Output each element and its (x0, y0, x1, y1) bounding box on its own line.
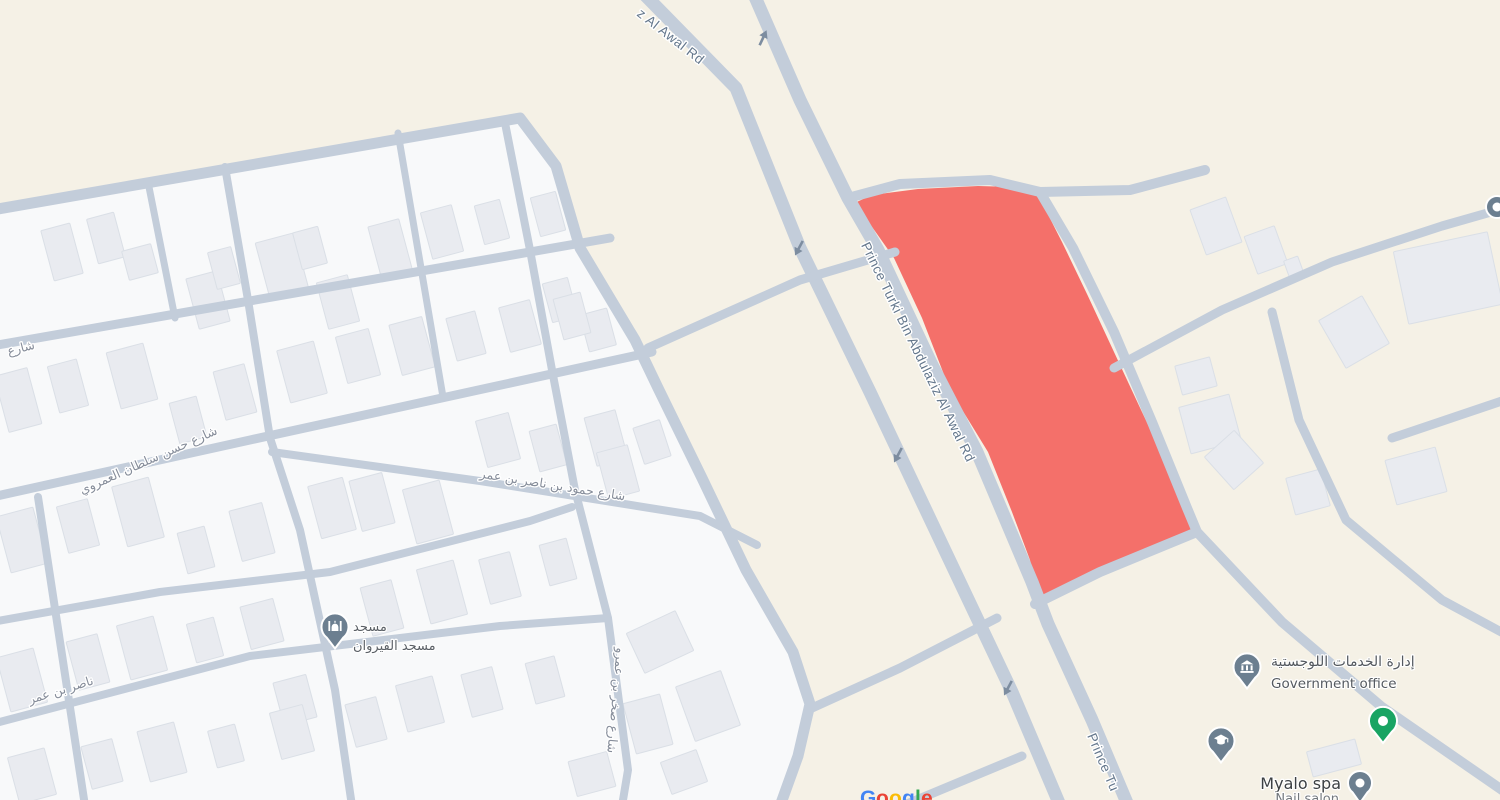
building (1175, 357, 1218, 395)
poi-pin-spa[interactable] (1348, 771, 1372, 800)
dot-icon (1378, 716, 1388, 726)
attribution-layer: Google (860, 787, 933, 800)
building (1306, 739, 1361, 777)
dot-icon (1356, 779, 1365, 788)
google-logo: o (876, 787, 889, 800)
poi-pin-government[interactable] (1234, 653, 1261, 688)
google-logo: o (889, 787, 902, 800)
google-logo: g (902, 787, 915, 800)
building (1190, 197, 1242, 255)
google-logo: e (921, 787, 933, 800)
building (1244, 226, 1288, 275)
road-branch-east-stub-road (1392, 400, 1500, 438)
road-mid-connector-road (648, 252, 895, 348)
road-south-connector-road (812, 618, 997, 708)
poi-label[interactable]: مسجد (353, 620, 387, 635)
poi-pin-edge-dot[interactable] (1486, 196, 1500, 218)
map-canvas[interactable]: شارعشارع حسن سلطان العمرويشارع حمود بن ن… (0, 0, 1500, 800)
building (1319, 296, 1390, 369)
poi-label[interactable]: مسجد القيروان (353, 639, 436, 654)
building (1393, 232, 1500, 324)
building (1385, 447, 1447, 505)
poi-label[interactable]: Government office (1271, 676, 1397, 692)
poi-label[interactable]: Nail salon (1275, 792, 1339, 800)
google-logo: G (860, 787, 876, 800)
poi-label[interactable]: إدارة الخدمات اللوجستية (1271, 654, 1415, 670)
map-viewport[interactable]: شارعشارع حسن سلطان العمرويشارع حمود بن ن… (0, 0, 1500, 800)
google-logo: l (915, 787, 921, 800)
poi-pin-green[interactable] (1369, 707, 1397, 743)
poi-label[interactable]: Myalo spa (1260, 774, 1341, 793)
poi-pin-education[interactable] (1208, 727, 1235, 762)
